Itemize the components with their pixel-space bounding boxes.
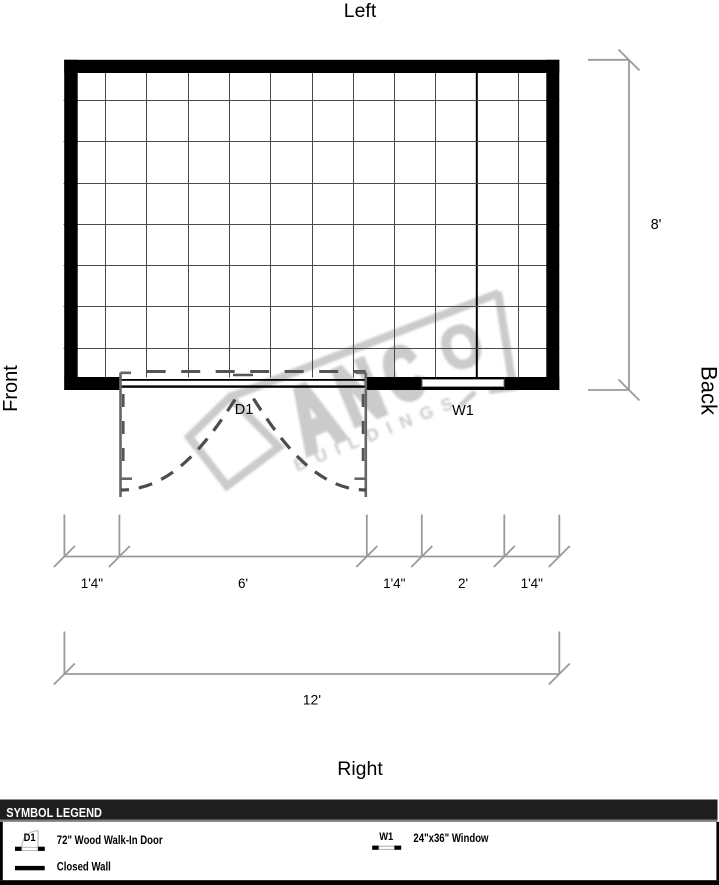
svg-text:Closed Wall: Closed Wall bbox=[57, 861, 111, 874]
svg-text:8': 8' bbox=[651, 217, 662, 233]
svg-text:Back: Back bbox=[697, 366, 719, 416]
svg-text:72" Wood Walk-In Door: 72" Wood Walk-In Door bbox=[57, 834, 164, 847]
svg-text:24"x36" Window: 24"x36" Window bbox=[413, 832, 489, 845]
svg-text:SYMBOL LEGEND: SYMBOL LEGEND bbox=[6, 806, 102, 820]
svg-text:W1: W1 bbox=[452, 403, 474, 419]
svg-text:6': 6' bbox=[238, 576, 248, 591]
svg-text:1'4": 1'4" bbox=[521, 576, 544, 591]
svg-text:Left: Left bbox=[344, 0, 377, 22]
svg-text:1'4": 1'4" bbox=[81, 576, 104, 591]
svg-text:D1: D1 bbox=[24, 832, 36, 844]
svg-text:D1: D1 bbox=[235, 402, 254, 418]
svg-text:W1: W1 bbox=[379, 831, 393, 843]
svg-text:12': 12' bbox=[303, 692, 321, 708]
svg-text:1'4": 1'4" bbox=[383, 576, 406, 591]
svg-text:Right: Right bbox=[337, 758, 383, 780]
svg-text:Front: Front bbox=[0, 365, 22, 412]
svg-text:2': 2' bbox=[458, 576, 468, 591]
